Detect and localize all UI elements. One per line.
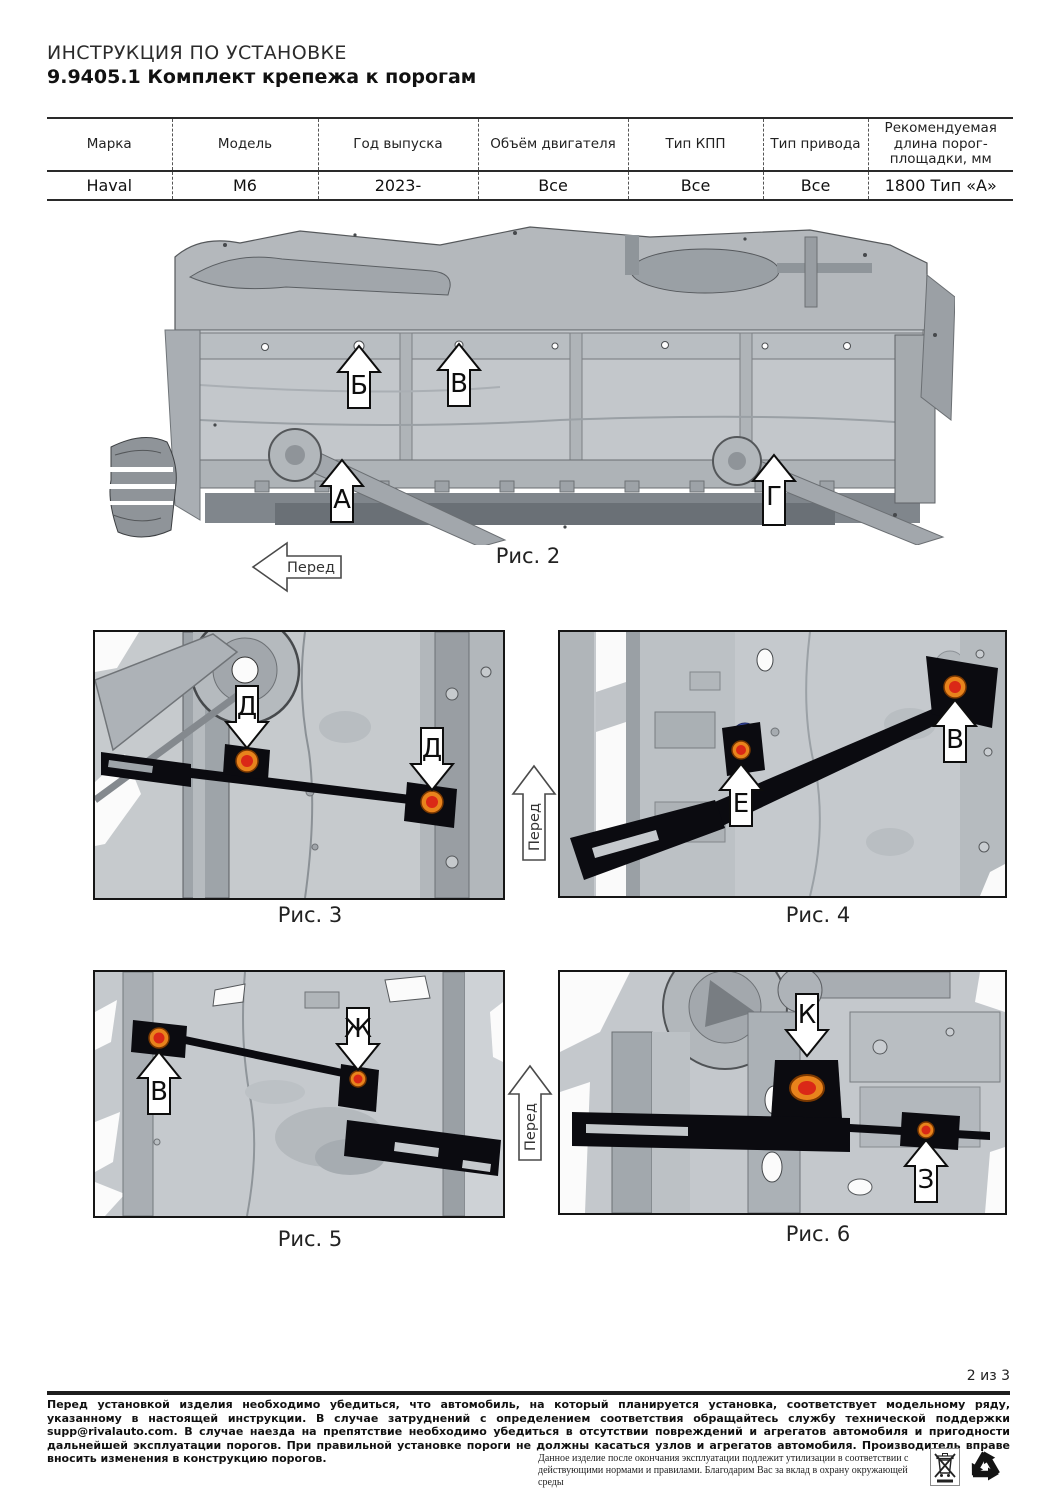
cell-engine: Все xyxy=(478,171,628,200)
figure-3-image: Д Д xyxy=(95,632,503,898)
instruction-page: ИНСТРУКЦИЯ ПО УСТАНОВКЕ 9.9405.1 Комплек… xyxy=(0,0,1061,1500)
svg-text:К: К xyxy=(798,1000,816,1030)
vehicle-spec-table: Марка Модель Год выпуска Объём двигателя… xyxy=(47,117,1013,201)
figure-4-caption: Рис. 4 xyxy=(738,903,898,927)
fastener-point-v xyxy=(149,1028,169,1048)
figure-6: К З xyxy=(558,970,1007,1215)
svg-text:Г: Г xyxy=(766,482,782,512)
fastener-point-k xyxy=(790,1075,824,1101)
figure-5-caption: Рис. 5 xyxy=(230,1227,390,1251)
cell-length: 1800 Тип «А» xyxy=(868,171,1013,200)
figure-2-image: Б В А Г xyxy=(105,215,955,545)
front-direction-arrow-fig2: Перед xyxy=(250,540,344,594)
svg-text:Перед: Перед xyxy=(287,560,335,576)
col-engine: Объём двигателя xyxy=(478,118,628,171)
svg-text:Д: Д xyxy=(237,692,257,722)
figure-2-caption: Рис. 2 xyxy=(448,544,608,568)
fastener-point-d1 xyxy=(236,750,258,772)
fastener-point-v xyxy=(944,676,966,698)
table-header-row: Марка Модель Год выпуска Объём двигателя… xyxy=(47,118,1013,171)
col-drive: Тип привода xyxy=(763,118,868,171)
cell-gearbox: Все xyxy=(628,171,763,200)
fastener-point-zh xyxy=(350,1071,366,1087)
cell-year: 2023- xyxy=(318,171,478,200)
svg-text:Перед: Перед xyxy=(527,803,543,851)
front-direction-arrow-bottom: Перед xyxy=(507,1063,553,1163)
figure-4: Е В xyxy=(558,630,1007,898)
col-year: Год выпуска xyxy=(318,118,478,171)
svg-text:Д: Д xyxy=(422,734,442,764)
col-brand: Марка xyxy=(47,118,172,171)
svg-text:В: В xyxy=(150,1077,168,1107)
fastener-point-d2 xyxy=(421,791,443,813)
svg-text:Е: Е xyxy=(733,789,749,819)
sill-art xyxy=(560,632,1005,896)
weee-bin-icon xyxy=(930,1448,960,1486)
col-length: Рекомендуемая длина порог-площадки, мм xyxy=(868,118,1013,171)
svg-text:З: З xyxy=(918,1165,935,1195)
cell-model: M6 xyxy=(172,171,318,200)
figure-6-caption: Рис. 6 xyxy=(738,1222,898,1246)
document-title: ИНСТРУКЦИЯ ПО УСТАНОВКЕ xyxy=(47,42,347,64)
col-gearbox: Тип КПП xyxy=(628,118,763,171)
front-direction-arrow-mid: Перед xyxy=(511,763,557,863)
cell-drive: Все xyxy=(763,171,868,200)
recycle-icon xyxy=(964,1446,1006,1488)
recycle-note: Данное изделие после окончания эксплуата… xyxy=(538,1453,930,1488)
figure-6-image: К З xyxy=(560,972,1005,1213)
svg-text:Ж: Ж xyxy=(344,1014,372,1044)
document-subtitle: 9.9405.1 Комплект крепежа к порогам xyxy=(47,66,476,88)
figure-5: В Ж xyxy=(93,970,505,1218)
figure-3-caption: Рис. 3 xyxy=(230,903,390,927)
fastener-point-z xyxy=(918,1122,934,1138)
svg-text:Перед: Перед xyxy=(523,1103,539,1151)
svg-text:В: В xyxy=(946,725,964,755)
table-row: Haval M6 2023- Все Все Все 1800 Тип «А» xyxy=(47,171,1013,200)
fastener-point-e xyxy=(732,741,750,759)
figure-3: Д Д xyxy=(93,630,505,900)
tire xyxy=(107,438,176,538)
sill-art xyxy=(560,972,1005,1213)
underbody-art xyxy=(107,227,955,545)
svg-text:А: А xyxy=(333,485,351,515)
page-number: 2 из 3 xyxy=(900,1368,1010,1384)
cell-brand: Haval xyxy=(47,171,172,200)
col-model: Модель xyxy=(172,118,318,171)
figure-5-image: В Ж xyxy=(95,972,503,1216)
svg-text:В: В xyxy=(450,369,468,399)
figure-4-image: Е В xyxy=(560,632,1005,896)
footer-divider xyxy=(47,1391,1010,1395)
svg-text:Б: Б xyxy=(350,371,368,401)
